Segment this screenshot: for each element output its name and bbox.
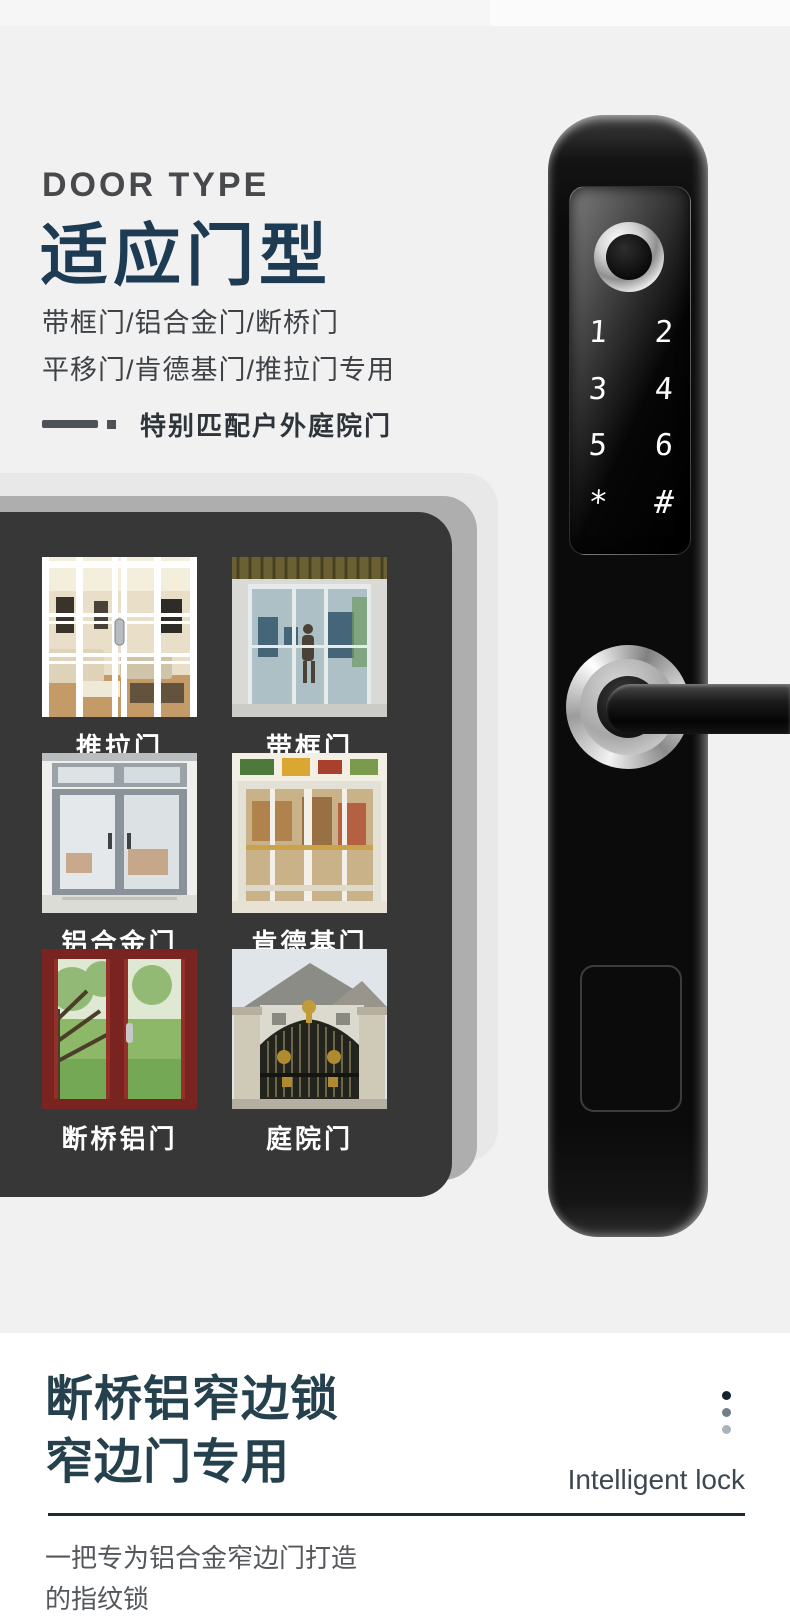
keypad-key-star: * — [577, 483, 620, 521]
top-corner-highlight — [490, 0, 790, 26]
footer-tagline-en: Intelligent lock — [568, 1464, 745, 1496]
hero-subtitle: 带框门/铝合金门/断桥门 平移门/肯德基门/推拉门专用 — [42, 300, 395, 394]
battery-cover-panel — [580, 965, 682, 1112]
fingerprint-core — [606, 234, 652, 280]
door-cell-kfc: 肯德基门 — [232, 753, 387, 960]
door-cell-framed: 带框门 — [232, 557, 387, 764]
door-label: 断桥铝门 — [42, 1119, 197, 1156]
keypad-key-4: 4 — [643, 372, 685, 407]
door-photo-aluminum-icon — [42, 753, 197, 913]
door-cell-thermal-break: 断桥铝门 — [42, 949, 197, 1156]
door-photo-thermal-break-icon — [42, 949, 197, 1109]
hero-subtitle-line2: 平移门/肯德基门/推拉门专用 — [42, 347, 395, 394]
keypad-key-hash: # — [643, 483, 686, 521]
keypad-key-6: 6 — [643, 428, 685, 463]
fingerprint-scanner-icon — [594, 222, 664, 292]
door-handle-lever — [606, 684, 790, 734]
square-bullet-icon — [107, 420, 116, 429]
footer-title-line1: 断桥铝窄边锁 — [45, 1368, 339, 1431]
door-cell-aluminum: 铝合金门 — [42, 753, 197, 960]
door-photo-kfc-icon — [232, 753, 387, 913]
product-page: DOOR TYPE 适应门型 带框门/铝合金门/断桥门 平移门/肯德基门/推拉门… — [0, 0, 790, 1623]
footer-title-line2: 窄边门专用 — [45, 1431, 339, 1494]
footer-title: 断桥铝窄边锁 窄边门专用 — [45, 1368, 339, 1494]
keypad-key-2: 2 — [643, 315, 685, 350]
lock-touch-panel: 1 2 3 4 5 6 * # — [569, 186, 691, 555]
footer-description: 一把专为铝合金窄边门打造 的指纹锁 — [45, 1538, 357, 1620]
keypad-key-5: 5 — [577, 428, 619, 463]
door-cell-sliding: 推拉门 — [42, 557, 197, 764]
door-cell-courtyard: 庭院门 — [232, 949, 387, 1156]
footer-description-line1: 一把专为铝合金窄边门打造 — [45, 1538, 357, 1579]
door-photo-framed-icon — [232, 557, 387, 717]
footer-description-line2: 的指纹锁 — [45, 1579, 357, 1620]
footer-divider — [48, 1513, 745, 1516]
dot-mid — [722, 1408, 731, 1417]
dot-dark — [722, 1391, 731, 1400]
page-title: 适应门型 — [40, 200, 332, 299]
door-label: 庭院门 — [232, 1119, 387, 1156]
door-photo-courtyard-icon — [232, 949, 387, 1109]
dash-icon — [42, 420, 98, 428]
ellipsis-dots-icon — [722, 1391, 731, 1442]
door-photo-sliding-icon — [42, 557, 197, 717]
keypad-key-1: 1 — [577, 315, 619, 350]
keypad-key-3: 3 — [577, 372, 619, 407]
feature-note-text: 特别匹配户外庭院门 — [140, 406, 392, 443]
dot-light — [722, 1425, 731, 1434]
hero-subtitle-line1: 带框门/铝合金门/断桥门 — [42, 300, 395, 347]
feature-note: 特别匹配户外庭院门 — [42, 409, 392, 439]
door-type-card: 推拉门 — [0, 512, 452, 1197]
